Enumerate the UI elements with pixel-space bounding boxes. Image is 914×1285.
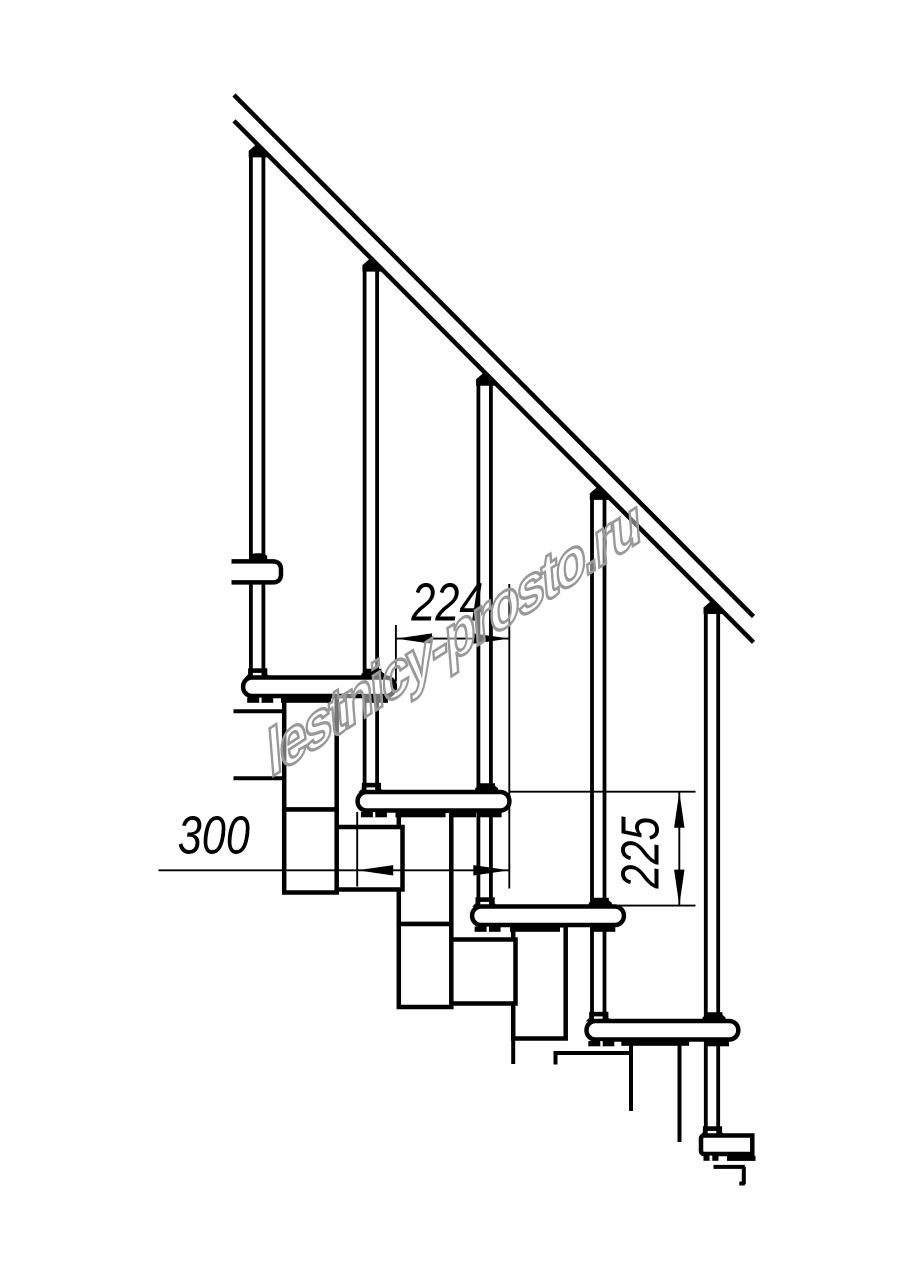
svg-text:225: 225 <box>611 816 671 890</box>
svg-text:300: 300 <box>178 806 250 866</box>
svg-text:lestnicy-prosto.ru: lestnicy-prosto.ru <box>265 483 641 793</box>
